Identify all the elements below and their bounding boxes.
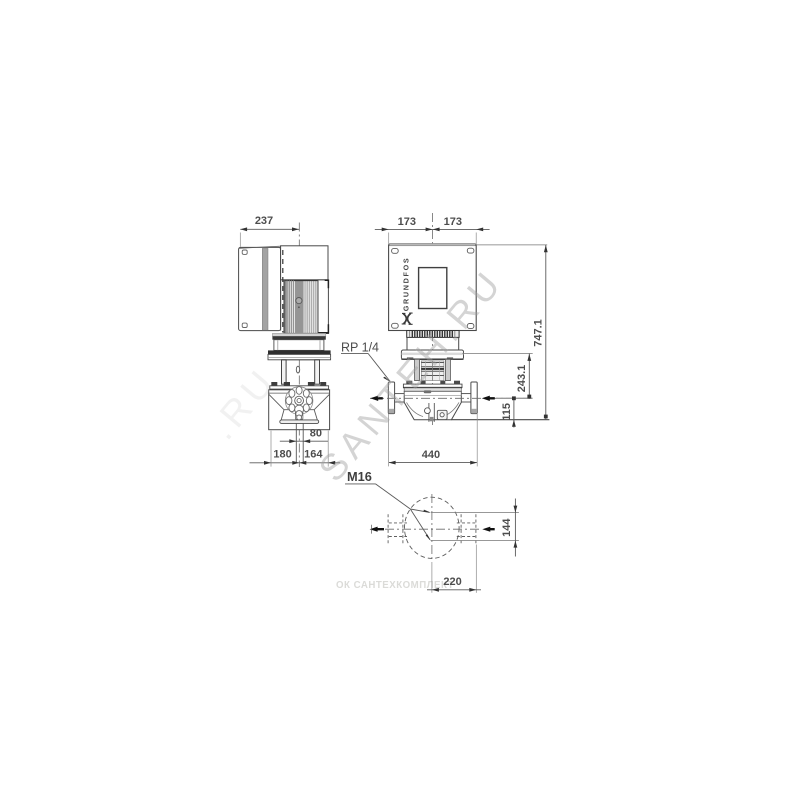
svg-text:237: 237: [255, 215, 273, 227]
svg-text:144: 144: [501, 518, 513, 537]
svg-text:220: 220: [443, 576, 461, 588]
svg-text:440: 440: [422, 449, 440, 461]
svg-text:115: 115: [501, 403, 513, 421]
svg-text:80: 80: [310, 428, 322, 440]
svg-text:173: 173: [398, 216, 416, 228]
svg-text:747.1: 747.1: [532, 319, 544, 347]
svg-text:RP 1/4: RP 1/4: [341, 341, 379, 355]
svg-text:243.1: 243.1: [516, 365, 528, 393]
svg-text:M16: M16: [347, 469, 372, 484]
svg-text:180: 180: [273, 449, 291, 461]
svg-text:GRUNDFOS: GRUNDFOS: [401, 257, 410, 312]
svg-text:173: 173: [444, 216, 462, 228]
